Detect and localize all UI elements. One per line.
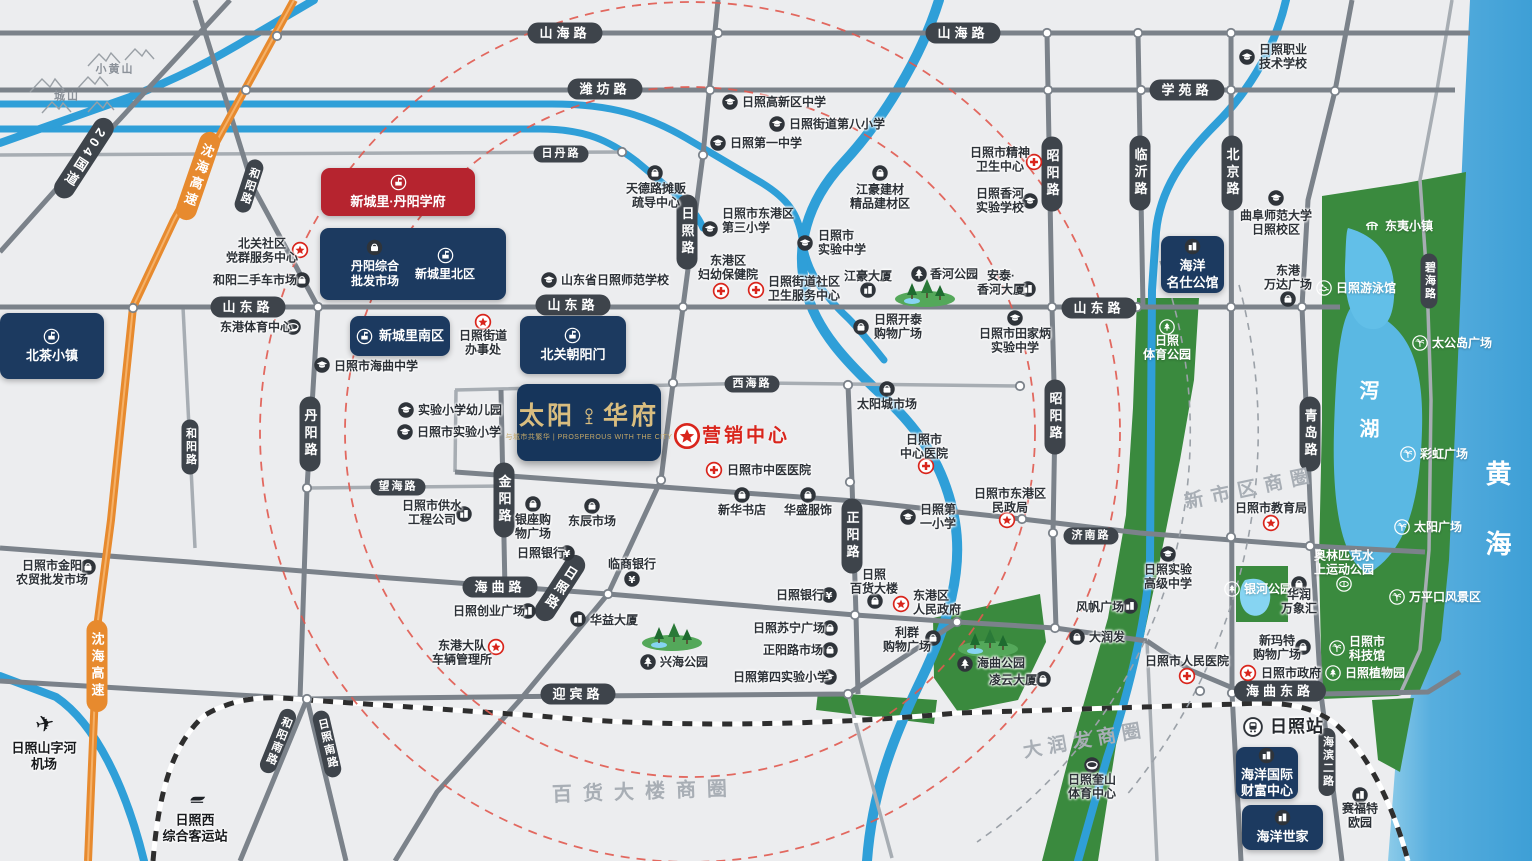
road-label-望海路: 望海路	[371, 479, 426, 496]
school-icon	[769, 116, 786, 133]
road-label-潍坊路: 潍坊路	[567, 79, 642, 100]
hospital-icon	[1179, 668, 1196, 685]
marketing-center-label: 营销中心	[702, 427, 790, 446]
poi-label: 海曲公园	[977, 656, 1025, 670]
poi-label: 天德路摊贩 疏导中心	[626, 182, 686, 211]
estate-box: 丹阳综合 批发市场新城里北区	[320, 228, 506, 300]
badge-icon	[43, 328, 60, 345]
poi-label: 日照游泳馆	[1336, 281, 1396, 295]
road-label-和阳路: 和阳路	[232, 157, 265, 215]
estate-entry: 北茶小镇	[26, 328, 78, 364]
shop-icon	[647, 165, 664, 182]
shop-icon	[366, 239, 383, 256]
school-icon	[1007, 310, 1024, 327]
building-icon	[1184, 238, 1201, 255]
road-label-山东路: 山东路	[1061, 298, 1136, 319]
badge-icon	[564, 327, 581, 344]
poi-label: 太阳广场	[1414, 520, 1462, 534]
poi-label: 日照 体育公园	[1143, 334, 1191, 363]
poi-label: 华盛服饰	[784, 503, 832, 517]
poi-label: 江豪建材 精品建材区	[850, 183, 910, 212]
school-icon	[398, 402, 415, 419]
road-label-昭阳路: 昭阳路	[1045, 380, 1066, 455]
poi-label: 和阳二手车市场	[213, 273, 297, 287]
estate-entry: 新城里南区	[356, 328, 444, 345]
road-label-山东路: 山东路	[210, 297, 285, 318]
svg-text:✈: ✈	[33, 712, 57, 736]
poi-label: 日照银行	[776, 588, 824, 602]
shop-icon	[1280, 291, 1297, 308]
poi-label: 日照市人民医院	[1145, 654, 1229, 668]
road-label-海滨二路: 海滨二路	[1319, 728, 1336, 796]
star-icon	[1240, 665, 1257, 682]
poi-label: 江豪大厦	[844, 269, 892, 283]
stadium-icon	[1084, 757, 1101, 774]
park-icon	[911, 266, 928, 283]
poi-label: 兴海公园	[660, 655, 708, 669]
poi-label: 日照市海曲中学	[334, 359, 418, 373]
poi-label: 日照实验 高级中学	[1144, 563, 1192, 592]
poi-label: 东港大队 车辆管理所	[432, 639, 492, 668]
poi-label: 日照市政府	[1261, 666, 1321, 680]
rail-icon	[1243, 717, 1263, 737]
road-label-沈海高速: 沈海高速	[87, 620, 108, 712]
mountain-label: 城山	[54, 92, 80, 103]
road-label-临沂路: 临沂路	[1130, 136, 1151, 211]
road-label-山东路: 山东路	[535, 295, 610, 316]
palm-icon	[1394, 519, 1411, 536]
road-label-昭阳路: 昭阳路	[1042, 137, 1063, 212]
svg-text:¥: ¥	[826, 591, 833, 602]
poi-label: 日照站	[1270, 717, 1324, 737]
road-label-和阳路: 和阳路	[182, 420, 199, 475]
poi-label: 新华书店	[718, 503, 766, 517]
poi-label: 日照奎山 体育中心	[1068, 773, 1116, 802]
shop-icon	[1035, 671, 1052, 688]
poi-label: 东港体育中心	[220, 320, 292, 334]
estate-name: 北关朝阳门	[540, 347, 605, 363]
poi-label: 日照高新区中学	[742, 95, 826, 109]
poi-label: 万平口风景区	[1409, 590, 1481, 604]
shop-icon	[853, 319, 870, 336]
poi-label: 正阳路市场	[763, 643, 823, 657]
road-label-西海路: 西海路	[725, 376, 780, 393]
poi-label: 日照苏宁广场	[753, 621, 825, 635]
map-canvas: 山海路山海路潍坊路日丹路学苑路山东路山东路山东路西海路望海路海曲路济南路迎宾路海…	[0, 0, 1532, 861]
estate-name: 新城里北区	[415, 267, 475, 282]
building-icon	[1274, 809, 1291, 826]
project-title: 太阳华府	[519, 404, 659, 429]
area-label: 泻湖	[1357, 380, 1377, 456]
poi-label: 日照市 实验中学	[818, 229, 866, 258]
estate-entry: 新城里·丹阳学府	[350, 174, 445, 210]
road-label-日照南路: 日照南路	[311, 709, 343, 779]
poi-label: 新玛特 购物广场	[1253, 634, 1301, 663]
area-label: 百货大楼商圈	[552, 779, 739, 805]
star-icon	[893, 596, 910, 613]
building-icon	[1122, 598, 1139, 615]
poi-label: 临商银行	[608, 557, 656, 571]
estate-name: 北茶小镇	[26, 348, 78, 364]
school-icon	[314, 357, 331, 374]
poi-label: 东辰市场	[568, 514, 616, 528]
poi-label: 利群 购物广场	[883, 626, 931, 655]
star-icon	[1263, 515, 1280, 532]
school-icon	[1022, 193, 1039, 210]
shop-icon	[800, 487, 817, 504]
stadium-icon	[1336, 576, 1353, 593]
poi-label: 曲阜师范大学 日照校区	[1240, 209, 1312, 238]
poi-label: 华益大厦	[590, 613, 638, 627]
estate-entry: 海洋国际 财富中心	[1241, 747, 1293, 800]
park-icon	[640, 654, 657, 671]
poi-label: 凌云大厦	[989, 673, 1037, 687]
estate-box: 北关朝阳门	[520, 316, 626, 374]
poi-label: 日照街道第八小学	[789, 117, 885, 131]
estate-box: 海洋国际 财富中心	[1236, 747, 1298, 799]
estate-box: 新城里·丹阳学府	[321, 168, 475, 216]
hospital-icon	[748, 282, 765, 299]
building-icon	[1258, 747, 1275, 764]
road-label-青岛路: 青岛路	[1300, 397, 1321, 472]
poi-label: 日照创业广场	[453, 604, 525, 618]
school-icon	[397, 424, 414, 441]
poi-label: 香河公园	[930, 267, 978, 281]
school-icon	[722, 94, 739, 111]
poi-label: 东港 万达广场	[1264, 264, 1312, 293]
area-label: 黄海	[1484, 460, 1510, 600]
estate-entry: 海洋世家	[1256, 809, 1308, 845]
poi-label: 东夷小镇	[1385, 219, 1433, 233]
palm-icon	[1412, 335, 1429, 352]
school-icon	[797, 235, 814, 252]
road-label-碧海路: 碧海路	[1421, 254, 1438, 309]
poi-label: 安泰· 香河大厦	[977, 269, 1025, 298]
train-icon	[186, 787, 208, 809]
mountain-label: 小黄山	[96, 65, 135, 76]
road-label-济南路: 济南路	[1064, 528, 1119, 545]
poi-label: 日照山字河 机场	[11, 740, 76, 771]
palm-icon	[1329, 640, 1346, 657]
poi-label: 日照市 中心医院	[900, 433, 948, 462]
poi-label: 彩虹广场	[1420, 447, 1468, 461]
project-tagline: 与城市共繁华 | PROSPEROUS WITH THE CITY	[505, 434, 672, 441]
school-icon	[1160, 546, 1177, 563]
palm-icon	[1389, 589, 1406, 606]
shop-icon	[1069, 629, 1086, 646]
poi-label: 日照 百货大楼	[850, 568, 898, 597]
poi-label: 日照第四实验小学	[733, 670, 829, 684]
swim-icon	[1316, 280, 1333, 297]
estate-name: 新城里南区	[379, 328, 444, 344]
estate-box: 海洋世家	[1242, 805, 1323, 850]
estate-entry: 北关朝阳门	[540, 327, 605, 363]
poi-label: 大润发	[1089, 630, 1125, 644]
shop-icon	[822, 642, 839, 659]
poi-label: 日照开泰 购物广场	[874, 313, 922, 342]
poi-label: 东港区 人民政府	[913, 589, 961, 618]
poi-label: 太阳城市场	[857, 397, 917, 411]
estate-name: 新城里·丹阳学府	[350, 194, 445, 210]
building-icon	[860, 282, 877, 299]
shop-icon	[872, 165, 889, 182]
estate-name: 海洋 名仕公馆	[1166, 258, 1218, 291]
hospital-icon	[713, 283, 730, 300]
poi-label: 日照市供水 工程公司	[402, 499, 462, 528]
project-title-right: 华府	[603, 404, 659, 429]
poi-label: 实验小学幼儿园	[418, 403, 502, 417]
road-label-迎宾路: 迎宾路	[540, 684, 615, 705]
badge-icon	[437, 247, 454, 264]
road-label-山海路: 山海路	[925, 23, 1000, 44]
park-icon	[1325, 665, 1342, 682]
project-title-left: 太阳	[519, 404, 575, 429]
poi-label: 日照市 科技馆	[1349, 635, 1385, 664]
school-icon	[900, 509, 917, 526]
poi-label: 日照街道社区 卫生服务中心	[768, 275, 840, 304]
poi-label: 山东省日照师范学校	[561, 273, 669, 287]
road-label-204国道: 204国道	[50, 114, 118, 202]
poi-label: 日照植物园	[1345, 666, 1405, 680]
poi-label: 奥林匹克水 上运动公园	[1314, 549, 1374, 578]
road-label-正阳路: 正阳路	[842, 499, 863, 574]
map-labels-layer: 山海路山海路潍坊路日丹路学苑路山东路山东路山东路西海路望海路海曲路济南路迎宾路海…	[0, 0, 1532, 861]
road-label-丹阳路: 丹阳路	[300, 397, 321, 472]
poi-label: 日照市东港区 第三小学	[722, 207, 794, 236]
road-label-和阳南路: 和阳南路	[257, 706, 298, 775]
project-emblem-icon	[581, 407, 597, 427]
school-icon	[702, 221, 719, 238]
road-label-日丹路: 日丹路	[534, 146, 589, 163]
hospital-icon	[706, 462, 723, 479]
park-icon	[1224, 581, 1241, 598]
badge-icon	[356, 328, 373, 345]
plane-icon: ✈	[33, 712, 57, 736]
poi-label: 日照第一中学	[730, 136, 802, 150]
school-icon	[541, 272, 558, 289]
road-label-海曲东路: 海曲东路	[1234, 681, 1326, 702]
road-label-沈海高速: 沈海高速	[173, 129, 223, 223]
road-label-金阳路: 金阳路	[494, 463, 515, 538]
area-label: 大润发商圈	[1022, 721, 1148, 761]
town-icon	[1364, 218, 1381, 235]
school-icon	[1239, 49, 1256, 66]
poi-label: 日照市精神 卫生中心	[970, 146, 1030, 175]
poi-label: 日照市实验小学	[417, 425, 501, 439]
marketing-center-star-icon	[674, 423, 701, 450]
poi-label: 北关社区 党群服务中心	[226, 237, 298, 266]
road-label-北京路: 北京路	[1222, 136, 1243, 211]
poi-label: 日照职业 技术学校	[1259, 43, 1307, 72]
building-icon	[570, 611, 587, 628]
poi-label: 太公岛广场	[1432, 336, 1492, 350]
shop-icon	[584, 498, 601, 515]
poi-label: 日照第 一小学	[920, 503, 956, 532]
school-icon	[1268, 190, 1285, 207]
project-box-taiyanghuafu: 太阳华府与城市共繁华 | PROSPEROUS WITH THE CITY	[517, 384, 661, 461]
school-icon	[710, 135, 727, 152]
poi-label: 日照街道 办事处	[459, 329, 507, 358]
bank-icon: ¥	[624, 571, 641, 588]
shop-icon	[734, 487, 751, 504]
palm-icon	[1400, 446, 1417, 463]
estate-box: 北茶小镇	[0, 313, 104, 379]
poi-label: 日照银行	[517, 546, 565, 560]
shop-icon	[525, 496, 542, 513]
estate-entry: 新城里北区	[415, 247, 475, 282]
poi-label: 日照市金阳 农贸批发市场	[16, 559, 88, 588]
svg-text:¥: ¥	[629, 575, 636, 586]
estate-box: 新城里南区	[350, 316, 450, 356]
estate-name: 丹阳综合 批发市场	[351, 259, 399, 289]
badge-icon	[390, 174, 407, 191]
poi-label: 日照市教育局	[1235, 501, 1307, 515]
poi-label: 华润 万象汇	[1281, 588, 1317, 617]
poi-label: 赛福特 欧园	[1342, 802, 1378, 831]
poi-label: 风帆广场	[1076, 600, 1124, 614]
road-label-学苑路: 学苑路	[1149, 80, 1224, 101]
poi-label: 日照香河 实验学校	[976, 187, 1024, 216]
estate-entry: 丹阳综合 批发市场	[351, 239, 399, 289]
poi-label: 日照市东港区 民政局	[974, 487, 1046, 516]
poi-label: 日照市中医医院	[727, 463, 811, 477]
road-label-山海路: 山海路	[527, 23, 602, 44]
poi-label: 日照西 综合客运站	[162, 812, 227, 843]
park-icon	[957, 656, 974, 673]
poi-label: 东港区 妇幼保健院	[698, 254, 758, 283]
estate-name: 海洋世家	[1256, 829, 1308, 845]
estate-box: 海洋 名仕公馆	[1161, 236, 1224, 293]
shop-icon	[879, 381, 896, 398]
estate-name: 海洋国际 财富中心	[1241, 767, 1293, 800]
poi-label: 银座购 物广场	[515, 513, 551, 542]
poi-label: 日照市田家炳 实验中学	[979, 327, 1051, 356]
estate-entry: 海洋 名仕公馆	[1166, 238, 1218, 291]
road-label-海曲路: 海曲路	[462, 577, 537, 598]
